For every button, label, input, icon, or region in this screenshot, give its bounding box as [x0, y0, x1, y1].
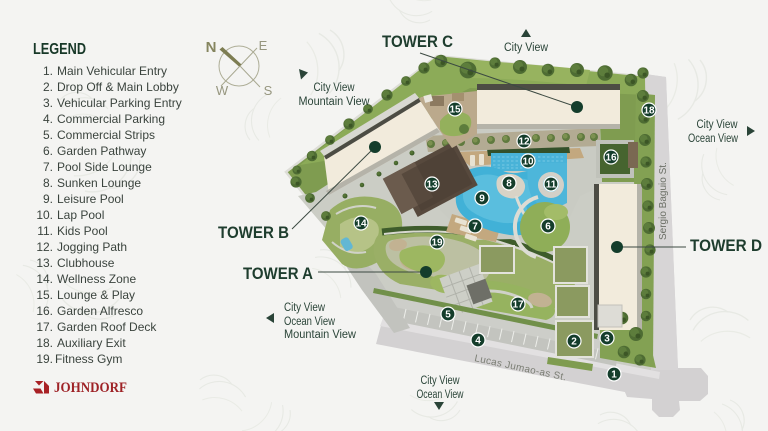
svg-text:15: 15	[449, 105, 461, 116]
svg-text:10: 10	[522, 157, 534, 168]
svg-text:17.: 17.	[36, 320, 53, 334]
svg-text:7: 7	[472, 222, 478, 233]
svg-text:10.: 10.	[36, 208, 53, 222]
svg-text:Kids Pool: Kids Pool	[57, 224, 108, 238]
svg-text:9: 9	[479, 194, 485, 205]
svg-text:14.: 14.	[36, 272, 53, 286]
svg-text:4: 4	[475, 336, 481, 347]
svg-text:12: 12	[518, 137, 530, 148]
svg-text:5.: 5.	[43, 128, 53, 142]
svg-text:5: 5	[445, 310, 451, 321]
svg-text:Vehicular Parking Entry: Vehicular Parking Entry	[57, 96, 182, 110]
svg-text:6: 6	[545, 222, 551, 233]
svg-text:Wellness Zone: Wellness Zone	[57, 272, 136, 286]
svg-text:Garden Roof Deck: Garden Roof Deck	[57, 320, 157, 334]
svg-text:Sunken Lounge: Sunken Lounge	[57, 176, 141, 190]
svg-text:Clubhouse: Clubhouse	[57, 256, 115, 270]
svg-text:City View: City View	[504, 42, 549, 54]
svg-text:City View: City View	[284, 302, 326, 314]
svg-text:TOWER D: TOWER D	[690, 236, 762, 255]
svg-text:11: 11	[546, 180, 557, 191]
svg-text:18.: 18.	[36, 336, 53, 350]
svg-text:W: W	[216, 83, 229, 98]
svg-text:Commercial Parking: Commercial Parking	[57, 112, 165, 126]
svg-text:JOHNDORF: JOHNDORF	[54, 380, 127, 396]
svg-text:City View: City View	[314, 82, 356, 94]
svg-text:11.: 11.	[37, 224, 53, 238]
svg-text:2: 2	[571, 337, 577, 348]
svg-text:14: 14	[355, 219, 367, 230]
svg-text:13.: 13.	[36, 256, 53, 270]
svg-text:1.: 1.	[43, 64, 53, 78]
svg-text:19.: 19.	[36, 352, 53, 366]
svg-text:6.: 6.	[43, 144, 53, 158]
svg-text:S: S	[264, 83, 273, 98]
svg-text:Sergio Baguio St.: Sergio Baguio St.	[658, 162, 669, 240]
svg-text:16: 16	[605, 153, 617, 164]
svg-text:Drop Off & Main Lobby: Drop Off & Main Lobby	[57, 80, 179, 94]
svg-text:Ocean View: Ocean View	[417, 389, 465, 401]
svg-text:2.: 2.	[43, 80, 53, 94]
svg-text:16.: 16.	[36, 304, 53, 318]
svg-text:3: 3	[604, 334, 610, 345]
svg-text:LEGEND: LEGEND	[33, 41, 86, 58]
svg-text:Main Vehicular Entry: Main Vehicular Entry	[57, 64, 167, 78]
svg-text:Mountain View: Mountain View	[299, 96, 371, 108]
svg-text:17: 17	[512, 300, 524, 311]
svg-text:8: 8	[506, 179, 512, 190]
svg-text:TOWER C: TOWER C	[382, 32, 453, 51]
svg-text:9.: 9.	[43, 192, 53, 206]
svg-text:Jogging Path: Jogging Path	[57, 240, 127, 254]
svg-text:N: N	[206, 39, 217, 56]
svg-text:4.: 4.	[43, 112, 53, 126]
svg-text:Lap Pool: Lap Pool	[57, 208, 104, 222]
svg-text:19: 19	[431, 238, 443, 249]
svg-text:TOWER A: TOWER A	[243, 264, 313, 283]
svg-text:Leisure Pool: Leisure Pool	[57, 192, 124, 206]
svg-text:Garden Alfresco: Garden Alfresco	[57, 304, 143, 318]
svg-text:3.: 3.	[43, 96, 53, 110]
svg-text:Lounge & Play: Lounge & Play	[57, 288, 135, 302]
svg-text:13: 13	[426, 180, 438, 191]
svg-text:Pool Side Lounge: Pool Side Lounge	[57, 160, 152, 174]
svg-text:Ocean View: Ocean View	[688, 133, 739, 145]
svg-text:Commercial Strips: Commercial Strips	[57, 128, 155, 142]
svg-text:Mountain View: Mountain View	[284, 329, 357, 341]
svg-text:Garden Pathway: Garden Pathway	[57, 144, 146, 158]
svg-text:7.: 7.	[43, 160, 53, 174]
svg-text:City View: City View	[697, 119, 739, 131]
svg-text:City View: City View	[421, 375, 461, 387]
svg-text:Fitness Gym: Fitness Gym	[55, 352, 122, 366]
svg-text:E: E	[259, 38, 268, 53]
svg-text:Auxiliary Exit: Auxiliary Exit	[57, 336, 126, 350]
svg-text:12.: 12.	[36, 240, 53, 254]
svg-text:8.: 8.	[43, 176, 53, 190]
svg-text:15.: 15.	[36, 288, 53, 302]
svg-text:1: 1	[611, 370, 617, 381]
svg-text:18: 18	[643, 106, 655, 117]
svg-text:Ocean View: Ocean View	[284, 316, 336, 328]
svg-text:TOWER B: TOWER B	[218, 223, 289, 242]
